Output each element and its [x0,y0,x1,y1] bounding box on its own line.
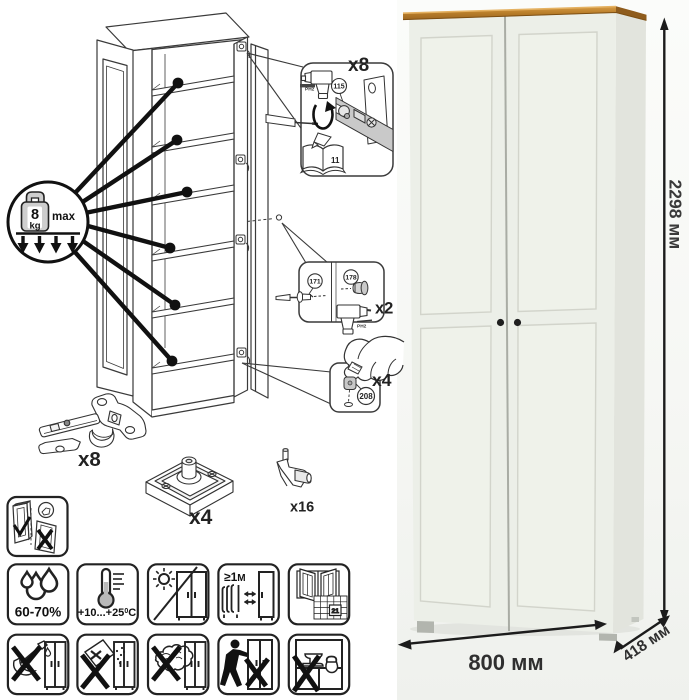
svg-text:x8: x8 [78,448,101,471]
svg-text:11: 11 [331,156,340,165]
svg-text:2298 мм: 2298 мм [666,180,686,250]
svg-text:max: max [52,211,76,223]
svg-text:60-70%: 60-70% [15,605,62,620]
svg-text:x8: x8 [348,55,369,76]
svg-text:115: 115 [333,84,344,91]
svg-text:≥1M: ≥1M [224,570,246,584]
svg-text:178: 178 [345,275,357,282]
svg-text:PH2: PH2 [357,324,367,330]
svg-text:171: 171 [309,279,321,286]
svg-text:21: 21 [332,608,340,615]
svg-text:208: 208 [359,392,373,401]
svg-text:800 мм: 800 мм [468,650,543,675]
svg-text:PH2: PH2 [305,87,315,93]
svg-text:kg: kg [29,221,40,232]
svg-text:x2: x2 [375,300,393,318]
svg-text:x4: x4 [372,370,392,390]
svg-text:x4: x4 [189,506,213,529]
svg-text:x16: x16 [290,500,314,516]
svg-text:+10...+250С: +10...+250С [78,607,136,619]
